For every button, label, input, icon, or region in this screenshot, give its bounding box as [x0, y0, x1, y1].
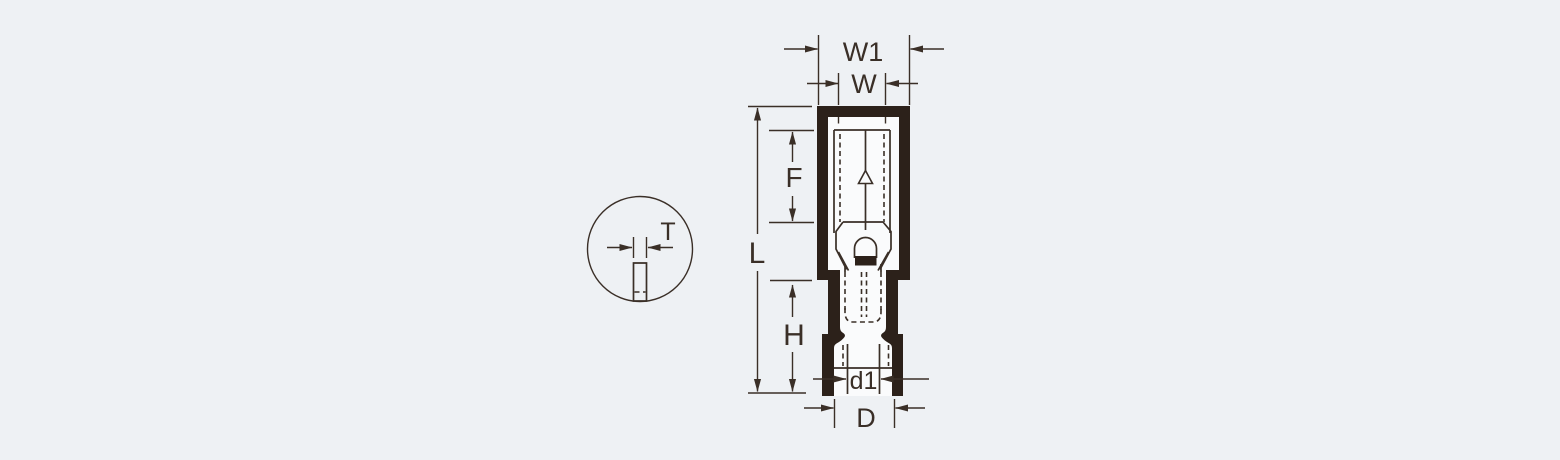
dim-label-w1: W1 — [843, 37, 884, 67]
tab-cross-section — [634, 263, 647, 301]
dim-label-w: W — [851, 69, 877, 99]
detail-circle-outline — [588, 197, 693, 302]
dim-label-l: L — [749, 237, 766, 270]
dim-label-f: F — [785, 162, 802, 193]
dim-label-d: D — [856, 403, 876, 433]
crimp-block — [855, 256, 877, 266]
dim-t: T — [607, 218, 676, 258]
main-view: W1 W L F H — [748, 35, 944, 433]
dim-f: F — [769, 131, 814, 223]
drawing-canvas: T — [0, 0, 1560, 460]
dim-label-t: T — [660, 218, 675, 246]
detail-circle-view: T — [588, 197, 693, 302]
dim-label-d1: d1 — [850, 367, 878, 395]
dim-h: H — [770, 281, 812, 392]
dim-d: D — [804, 399, 925, 433]
dim-label-h: H — [783, 319, 805, 352]
